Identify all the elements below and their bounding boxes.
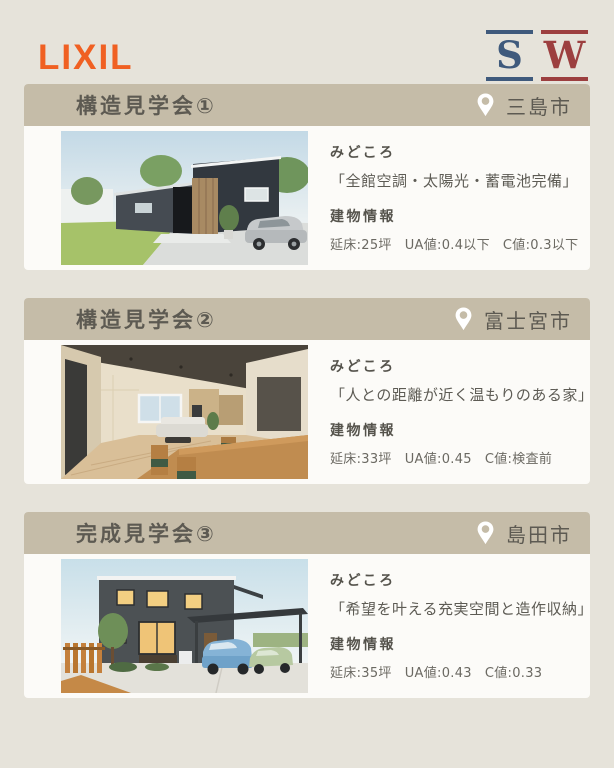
event-city: 富士宮市 (484, 305, 572, 334)
spec-floor-area: 延床:33坪 (330, 448, 392, 467)
event-card-3-body: みどころ 「希望を叶える充実空間と造作収納」 建物情報 延床:35坪 UA値:0… (24, 554, 590, 698)
spec-ua-value: UA値:0.45 (405, 448, 472, 467)
building-specs: 延床:33坪 UA値:0.45 C値:検査前 (330, 448, 590, 467)
event-card-3-text: みどころ 「希望を叶える充実空間と造作収納」 建物情報 延床:35坪 UA値:0… (308, 559, 590, 693)
houseplant (207, 412, 219, 430)
upper-window-3 (185, 594, 202, 609)
event-card-3: 完成見学会③ 島田市 (24, 512, 590, 698)
living-dining-interior-photo (61, 345, 308, 479)
event-card-1: 構造見学会① 三島市 (24, 84, 590, 270)
entry-recess (173, 187, 193, 233)
left-window-dark (65, 359, 87, 475)
upper-window-2 (147, 591, 168, 607)
two-story-house-photo (61, 559, 308, 693)
event-card-2-text: みどころ 「人との距離が近く温もりのある家」 建物情報 延床:33坪 UA値:0… (308, 345, 590, 479)
building-specs: 延床:35坪 UA値:0.43 C値:0.33 (330, 662, 590, 681)
roof-trim (97, 576, 236, 580)
event-title: 完成見学会③ (76, 518, 217, 548)
highlight-label: みどころ (330, 570, 590, 590)
spec-floor-area: 延床:25坪 (330, 234, 392, 253)
upper-window-1 (117, 590, 134, 605)
event-card-2-body: みどころ 「人との距離が近く温もりのある家」 建物情報 延床:33坪 UA値:0… (24, 340, 590, 484)
spec-c-value: C値:検査前 (485, 448, 552, 467)
highlight-text: 「人との距離が近く温もりのある家」 (330, 384, 590, 405)
carport-post (299, 613, 302, 667)
superwall-w: W (541, 30, 588, 81)
wood-entry-panel (192, 178, 218, 234)
event-location: 島田市 (476, 512, 572, 554)
event-card-3-header: 完成見学会③ 島田市 (24, 512, 590, 554)
highlight-text: 「全館空調・太陽光・蓄電池完備」 (330, 170, 590, 191)
spec-ua-value: UA値:0.4以下 (405, 234, 490, 253)
location-pin-icon (476, 520, 495, 546)
brand-bar: LIXIL S W SUPER WALL (0, 0, 614, 84)
highlight-label: みどころ (330, 142, 590, 162)
house-exterior-illustration (61, 131, 308, 265)
highlight-label: みどころ (330, 356, 590, 376)
spec-c-value: C値:0.3以下 (503, 234, 579, 253)
coffee-table (165, 437, 191, 443)
building-info-label: 建物情報 (330, 420, 590, 440)
spec-c-value: C値:0.33 (485, 662, 543, 681)
flyer-page: LIXIL S W SUPER WALL 構造見学会① 三島市 (0, 0, 614, 768)
wood-step (139, 655, 177, 663)
superwall-s: S (486, 30, 533, 81)
building-specs: 延床:25坪 UA値:0.4以下 C値:0.3以下 (330, 234, 590, 253)
ac-unit (179, 651, 192, 664)
sofa-seat (156, 424, 208, 437)
shrubs (109, 662, 137, 672)
superwall-letters: S W (484, 30, 590, 81)
event-card-1-body: みどころ 「全館空調・太陽光・蓄電池完備」 建物情報 延床:25坪 UA値:0.… (24, 126, 590, 270)
event-city: 島田市 (506, 519, 572, 548)
front-window (245, 188, 268, 201)
building-info-label: 建物情報 (330, 206, 590, 226)
highlight-text: 「希望を叶える充実空間と造作収納」 (330, 598, 590, 619)
event-card-1-text: みどころ 「全館空調・太陽光・蓄電池完備」 建物情報 延床:25坪 UA値:0.… (308, 131, 590, 265)
pass-through-opening (257, 377, 301, 431)
event-city: 三島市 (506, 91, 572, 120)
interior-illustration (61, 345, 308, 479)
event-card-2: 構造見学会② 富士宮市 (24, 298, 590, 484)
event-card-1-header: 構造見学会① 三島市 (24, 84, 590, 126)
event-title: 構造見学会② (76, 304, 217, 334)
lixil-logo: LIXIL (38, 40, 134, 75)
event-title: 構造見学会① (76, 90, 217, 120)
side-window (135, 203, 152, 213)
entry-plant (219, 205, 239, 231)
entry-steps (153, 234, 231, 243)
spec-floor-area: 延床:35坪 (330, 662, 392, 681)
building-info-label: 建物情報 (330, 634, 590, 654)
wood-fence (63, 643, 105, 673)
event-card-2-header: 構造見学会② 富士宮市 (24, 298, 590, 340)
location-pin-icon (454, 306, 473, 332)
desk-chair (192, 405, 202, 419)
location-pin-icon (476, 92, 495, 118)
house-carport-illustration (61, 559, 308, 693)
spec-ua-value: UA値:0.43 (405, 662, 472, 681)
garden-tree (98, 613, 128, 649)
event-location: 三島市 (476, 84, 572, 126)
event-location: 富士宮市 (454, 298, 572, 340)
black-one-story-house-photo (61, 131, 308, 265)
